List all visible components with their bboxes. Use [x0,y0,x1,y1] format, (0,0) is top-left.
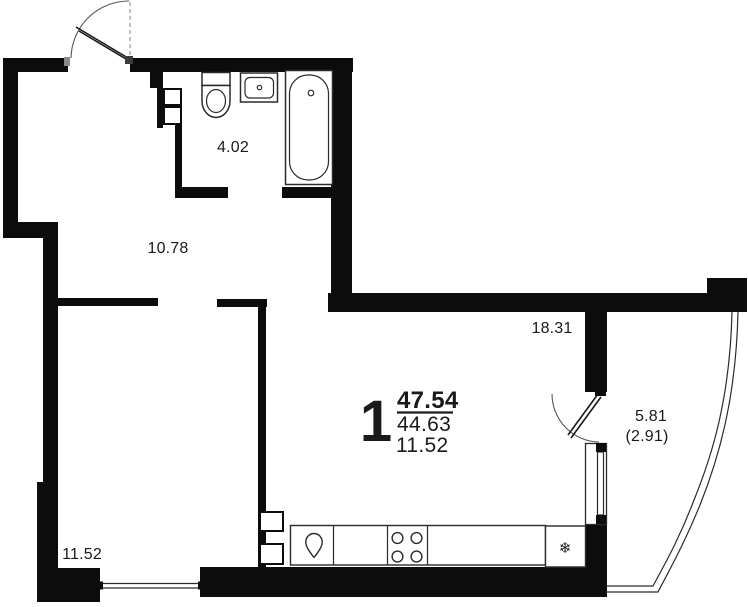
balcony-door-leaf [568,394,601,438]
wall-hall-bedroom [57,298,158,306]
bathroom-duct-1 [164,89,181,105]
balcony-window-cap-top [596,443,606,452]
bathtub [286,71,333,185]
toilet-bowl-inner [207,90,226,113]
balcony-window [586,443,607,525]
counter-outline [291,526,546,566]
total-area: 47.54 [397,387,459,414]
exterior-walls [3,58,747,602]
kitchen-duct-2 [260,544,283,564]
bathtub-drain [308,90,314,96]
toilet-tank [202,73,230,86]
balcony-area-label: 5.81 [635,408,667,425]
wall-top-right-block [707,278,747,312]
wall-bathroom-right-column [331,58,352,312]
wall-left-mid [43,222,58,482]
entry-door-leaf [76,27,131,62]
rooms-count: 1 [360,389,392,454]
balcony-glazing-inner [606,312,732,586]
balcony-coeff-area-label: (2.91) [626,428,669,445]
wall-living-right-upper [585,312,607,392]
sink-drain [257,85,261,89]
bedroom-window [97,582,204,590]
balcony-door-hinge [595,388,606,396]
kitchen-counter [291,526,586,568]
wall-bottom-left-corner [37,568,100,602]
bathroom-area-label: 4.02 [217,139,249,156]
floor-plan: ❄ 4.02 10.78 18.31 11.52 5.81 (2.91) 1 4… [0,0,748,607]
living-area: 44.63 [397,413,451,436]
bedroom-window-cap-left [97,582,103,590]
wall-bottom [200,567,607,597]
wall-living-right-lower [585,525,607,597]
bedroom-window-cap-right [198,582,204,590]
wall-left-upper [3,58,18,238]
entry-door [64,1,133,66]
room-area: 11.52 [396,434,449,457]
wall-bathroom-bottom-left [175,187,228,198]
bedroom-area-label: 11.52 [62,546,102,563]
living-kitchen-area-label: 18.31 [531,320,572,337]
bathroom-sink [241,73,278,102]
fridge-snowflake-icon: ❄ [559,540,572,557]
wall-bathroom-partition [175,124,182,190]
wall-bathroom-duct-strip [157,72,163,128]
wall-bathroom-bottom-right [282,187,335,198]
hallway-area-label: 10.78 [147,240,188,257]
entry-door-frame-left [64,57,70,66]
toilet [202,73,230,118]
kitchen-duct-1 [260,512,283,531]
balcony-door [552,388,606,442]
wall-living-top [328,293,747,312]
bathroom-duct-2 [164,107,181,124]
balcony-glazing [606,312,738,592]
balcony-window-cap-bottom [596,515,606,524]
entry-door-hinge [125,56,133,64]
apartment-summary: 1 47.54 44.63 11.52 [360,387,459,457]
